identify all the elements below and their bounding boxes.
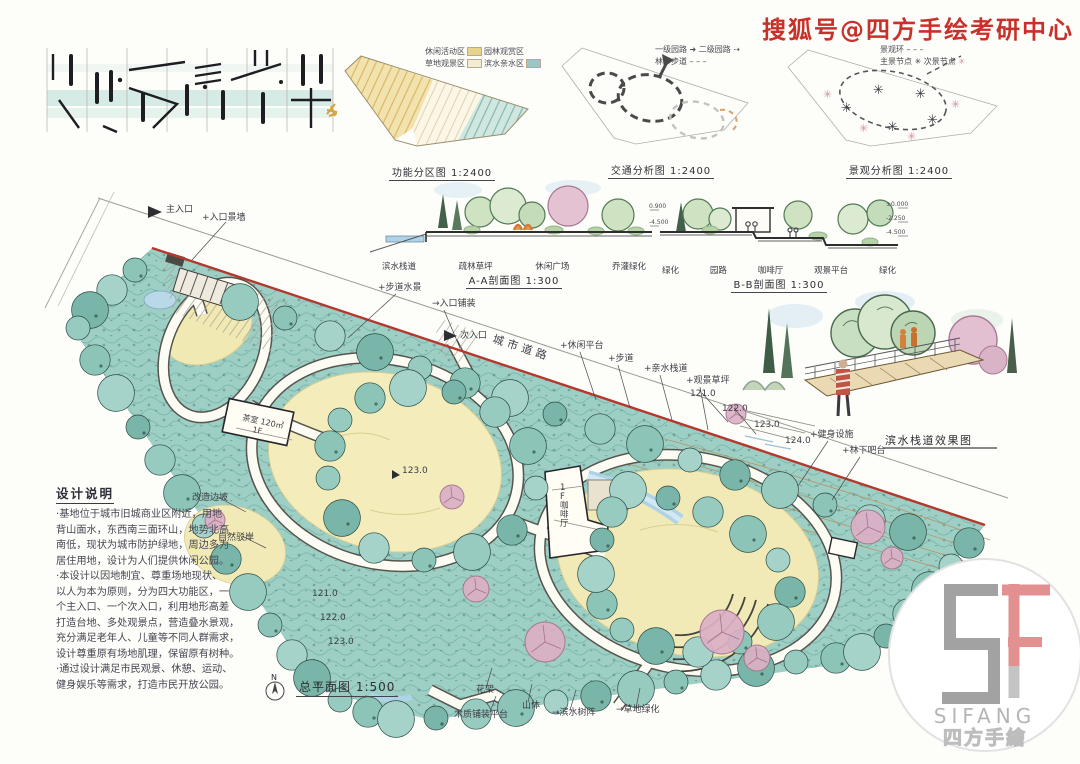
plan-title-group: N 总平面图 1:500	[262, 672, 452, 702]
section-label: 疏林草坪	[459, 260, 493, 272]
svg-text:0.900: 0.900	[649, 203, 666, 210]
logo-cn-text: 四方手繪	[943, 726, 1027, 749]
watermark-text: 搜狐号@四方手绘考研中心	[762, 10, 1074, 45]
svg-text:✳: ✳	[951, 98, 960, 111]
svg-text:±0.000: ±0.000	[886, 201, 908, 208]
legend-label: 主景节点	[880, 57, 912, 66]
svg-text:✳: ✳	[841, 101, 852, 116]
zoning-legend: 休闲活动区园林观赏区 草地观景区滨水亲水区	[425, 46, 557, 70]
section-b-elevations-left: 0.900 -4.500	[649, 203, 669, 226]
legend-label: 次景节点	[924, 57, 956, 66]
section-label: 乔灌绿化	[612, 260, 646, 272]
traffic-legend-row: 一级园路 ➜ 二级园路 ⇢	[655, 44, 775, 56]
notes-line: 居住用地，设计为人们提供休闲公园。	[56, 554, 256, 570]
sifang-logo: SIFANG 四方手繪	[888, 558, 1080, 752]
zoning-legend-row: 休闲活动区园林观赏区	[425, 46, 557, 58]
notes-line: 背山面水，东西南三面环山，地势北高	[56, 523, 256, 539]
zone-label: 滨水亲水区	[484, 59, 524, 68]
perspective-caption: 滨水栈道效果图	[885, 433, 973, 447]
perspective-sketch: 滨水栈道效果图	[735, 278, 1025, 453]
svg-text:✳: ✳	[859, 122, 868, 135]
plan-label: →入口铺装	[432, 297, 476, 309]
notes-line: 设计尊重原有场地肌理，保留原有树种。	[56, 647, 256, 663]
notes-line: ·基地位于城市旧城商业区附近，用地	[56, 507, 256, 523]
notes-line: ·本设计以因地制宜、尊重场地现状、	[56, 569, 256, 585]
zone-label: 休闲活动区	[425, 47, 465, 56]
section-b-labels: 绿化 园路 咖啡厅 观景平台 绿化	[648, 264, 910, 276]
section-label: 滨水栈道	[382, 260, 416, 272]
plan-label: 城市道路	[491, 332, 552, 364]
section-label: 绿化	[879, 264, 896, 276]
section-a-caption: A-A剖面图 1:300	[368, 272, 660, 289]
plan-label: →滨水树阵	[552, 706, 596, 718]
zone-swatch	[467, 59, 482, 68]
notes-line: 健身娱乐等需求，打造市民开放公园。	[56, 678, 256, 694]
section-a-art	[368, 178, 660, 256]
section-label: 咖啡厅	[758, 264, 784, 276]
north-arrow-icon: N	[262, 672, 288, 702]
plan-label: +入口景墙	[202, 211, 246, 223]
traffic-legend-row: 林下步道 – – –	[655, 56, 775, 68]
section-a: 滨水栈道 疏林草坪 休闲广场 乔灌绿化 A-A剖面图 1:300	[368, 178, 660, 289]
svg-text:✳: ✳	[887, 120, 898, 135]
plan-label: 主入口	[166, 203, 193, 215]
section-label: 休闲广场	[535, 260, 569, 272]
logo-en-text: SIFANG	[934, 704, 1036, 728]
plan-label: 花架	[476, 683, 494, 695]
plan-label: 123.0	[402, 466, 428, 476]
plan-label: 121.0	[690, 389, 716, 399]
svg-text:-4.500: -4.500	[886, 229, 906, 236]
zone-label: 草地观景区	[425, 59, 465, 68]
drawing-sheet: 主入口+入口景墙+步道水景→入口铺装次入口城市道路+休闲平台+步道+亲水栈道+观…	[0, 0, 1080, 764]
traffic-caption: 交通分析图 1:2400	[552, 162, 770, 179]
section-b-art: 0.900 -4.500 ±0.000 -2.250 -4.500	[648, 182, 910, 260]
zone-swatch	[467, 47, 482, 56]
svg-text:✳: ✳	[823, 88, 832, 101]
svg-text:✳: ✳	[907, 130, 916, 143]
section-label: 绿化	[662, 264, 679, 276]
zone-swatch	[526, 59, 541, 68]
plan-label: +休闲平台	[560, 339, 604, 351]
section-label: 观景平台	[814, 264, 848, 276]
landscape-legend: 景观环 – – – 主景节点 ✳ 次景节点 ✳	[880, 44, 1020, 68]
logo-s-glyph	[942, 590, 998, 698]
plan-caption: 总平面图 1:500	[296, 678, 398, 697]
plan-label: +观景草坪	[686, 374, 730, 386]
notes-line: 打造台地、多处观景点，营造叠水景观，	[56, 616, 256, 632]
section-a-labels: 滨水栈道 疏林草坪 休闲广场 乔灌绿化	[368, 260, 660, 272]
svg-text:N: N	[271, 673, 277, 682]
plan-label: 123.0	[328, 637, 354, 647]
notes-line: 个主入口、一个次入口，利用地形高差	[56, 600, 256, 616]
plan-label: 122.0	[320, 613, 346, 623]
design-notes: 设计说明 ·基地位于城市旧城商业区附近，用地 背山面水，东西南三面环山，地势北高…	[56, 484, 256, 693]
title-block-art	[45, 40, 337, 138]
perspective-art: 滨水栈道效果图	[735, 278, 1025, 453]
svg-text:✳: ✳	[873, 83, 884, 98]
landscape-legend-row: 景观环 – – –	[880, 44, 1020, 56]
notes-line: 以人为本为原则，分为四大功能区，一	[56, 585, 256, 601]
landscape-legend-row: 主景节点 ✳ 次景节点 ✳	[880, 56, 1020, 68]
zone-label: 园林观赏区	[484, 47, 524, 56]
landscape-caption: 景观分析图 1:2400	[775, 162, 1023, 179]
sifang-logo-art: SIFANG 四方手繪	[890, 560, 1080, 750]
arrow-icon: ➜	[690, 45, 697, 54]
plan-label: +步道	[608, 352, 634, 364]
svg-text:✳: ✳	[927, 113, 938, 128]
road-label: 林下步道	[655, 57, 687, 66]
section-label: 园路	[710, 264, 727, 276]
zoning-legend-row: 草地观景区滨水亲水区	[425, 58, 557, 70]
star-icon: ✳	[958, 57, 965, 66]
plan-label: 山体	[522, 699, 540, 711]
legend-label: 景观环	[880, 45, 904, 54]
traffic-legend: 一级园路 ➜ 二级园路 ⇢ 林下步道 – – –	[655, 44, 775, 68]
notes-line: 南低，现状为城市防护绿地，周边多为	[56, 538, 256, 554]
road-label: 一级园路	[655, 45, 687, 54]
plan-label: 次入口	[460, 329, 487, 341]
logo-f-glyph	[1002, 584, 1050, 698]
notes-line: ·通过设计满足市民观景、休憩、运动、	[56, 662, 256, 678]
notes-title: 设计说明	[56, 484, 114, 504]
star-icon: ✳	[915, 57, 922, 66]
notes-line: 充分满足老年人、儿童等不同人群需求，	[56, 631, 256, 647]
plan-label: 木质铺装平台	[454, 708, 508, 720]
road-label: 二级园路	[699, 45, 731, 54]
svg-text:-2.250: -2.250	[886, 215, 906, 222]
svg-text:-4.500: -4.500	[649, 219, 669, 226]
section-b: 0.900 -4.500 ±0.000 -2.250 -4.500 绿化 园路 …	[648, 182, 910, 293]
plan-label: 121.0	[312, 589, 338, 599]
plan-label: +亲水栈道	[644, 362, 688, 374]
svg-text:✳: ✳	[915, 87, 926, 102]
section-b-elevations-right: ±0.000 -2.250 -4.500	[886, 201, 908, 236]
plan-label: →草地绿化	[616, 703, 660, 715]
figure-striped	[836, 360, 850, 417]
